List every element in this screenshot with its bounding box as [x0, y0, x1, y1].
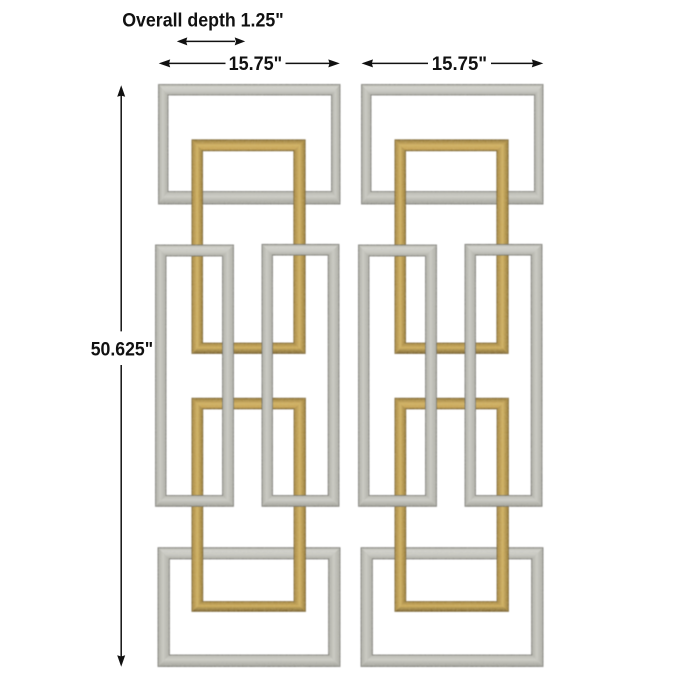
svg-text:15.75": 15.75" — [432, 53, 487, 75]
svg-text:50.625": 50.625" — [91, 339, 153, 361]
svg-text:Overall depth 1.25": Overall depth 1.25" — [122, 9, 284, 31]
svg-text:15.75": 15.75" — [229, 53, 283, 75]
